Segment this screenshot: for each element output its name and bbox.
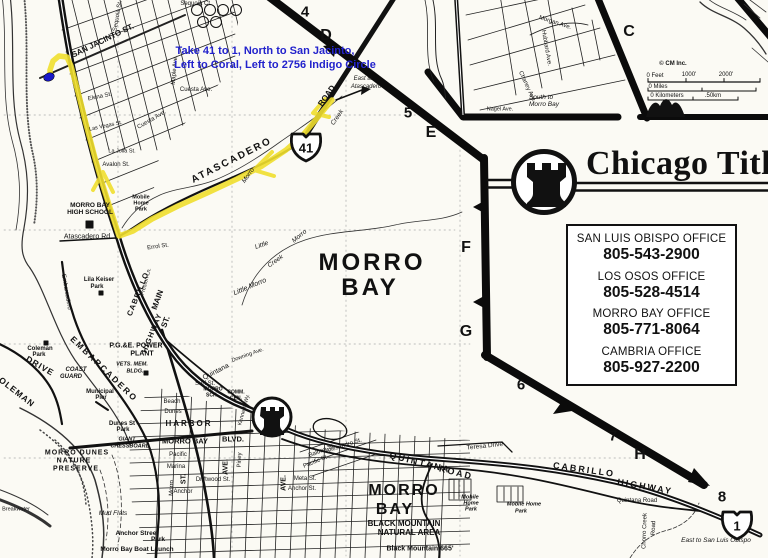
black-mountain-road bbox=[422, 464, 440, 558]
office-phone: 805-543-2900 bbox=[570, 246, 733, 264]
office-name: LOS OSOS OFFICE bbox=[570, 271, 733, 283]
route-directions-line2: Left to Coral, Left to 2756 Indigo Circl… bbox=[174, 59, 376, 71]
mountain-silhouette-icon bbox=[646, 99, 685, 117]
office-listing: MORRO BAY OFFICE805-771-8064 bbox=[570, 308, 733, 339]
teresa-drive-road bbox=[438, 442, 512, 452]
office-phone: 805-528-4514 bbox=[570, 284, 733, 302]
highway-shield-41 bbox=[291, 134, 320, 161]
route-directions-line1: Take 41 to 1, North to San Jacinto, bbox=[176, 45, 355, 57]
quintana-road-west bbox=[166, 340, 254, 410]
office-listing: SAN LUIS OBISPO OFFICE805-543-2900 bbox=[570, 233, 733, 264]
highway-41 bbox=[116, 0, 396, 238]
office-listing: CAMBRIA OFFICE805-927-2200 bbox=[570, 346, 733, 377]
morro-bay-blvd-road bbox=[70, 431, 252, 448]
graticule-gridlines bbox=[4, 6, 640, 556]
highway-shield-1 bbox=[722, 512, 751, 539]
office-directory: SAN LUIS OBISPO OFFICE805-543-2900LOS OS… bbox=[566, 224, 737, 386]
scale-bar bbox=[648, 79, 760, 101]
atascadero-rd-west bbox=[60, 238, 116, 241]
office-name: MORRO BAY OFFICE bbox=[570, 308, 733, 320]
corner-map-fragment bbox=[700, 0, 768, 62]
office-phone: 805-771-8064 bbox=[570, 321, 733, 339]
street-grid-downtown bbox=[130, 386, 470, 558]
brand-title: Chicago Title bbox=[586, 145, 768, 183]
office-phone: 805-927-2200 bbox=[570, 359, 733, 377]
coleman-drive-road bbox=[0, 342, 62, 424]
office-name: SAN LUIS OBISPO OFFICE bbox=[570, 233, 733, 245]
main-street-downtown bbox=[162, 330, 214, 558]
office-listing: LOS OSOS OFFICE805-528-4514 bbox=[570, 271, 733, 302]
office-name: CAMBRIA OFFICE bbox=[570, 346, 733, 358]
inset-map bbox=[424, 0, 625, 115]
high-school-building bbox=[86, 221, 93, 228]
